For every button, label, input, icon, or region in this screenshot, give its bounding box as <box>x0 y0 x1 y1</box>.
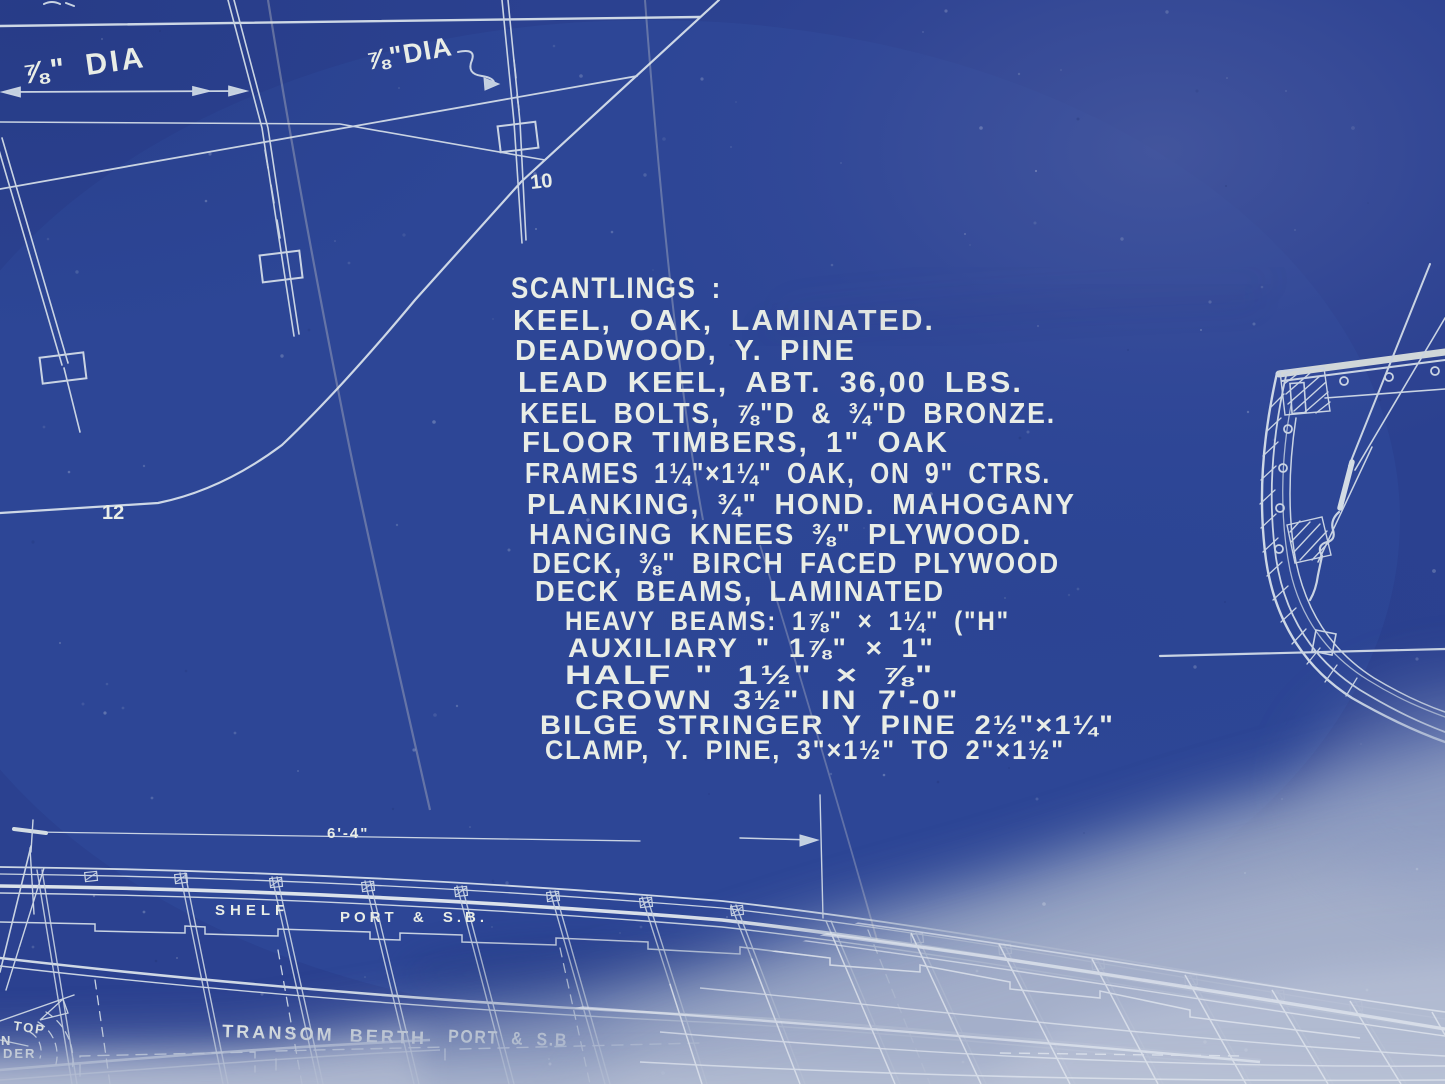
svg-text:AUXILIARY " 1⅞" × 1": AUXILIARY " 1⅞" × 1" <box>568 633 935 663</box>
svg-text:HEAVY BEAMS: 1⅞" × 1¼" ("H": HEAVY BEAMS: 1⅞" × 1¼" ("H" <box>565 606 1010 636</box>
svg-text:FLOOR TIMBERS, 1" OAK: FLOOR TIMBERS, 1" OAK <box>522 427 949 459</box>
svg-text:CLAMP, Y. PINE, 3"×1½" TO 2"×1: CLAMP, Y. PINE, 3"×1½" TO 2"×1½" <box>545 735 1065 765</box>
svg-text:PORT & S.B.: PORT & S.B. <box>340 909 488 926</box>
svg-text:FRAMES 1¼"×1¼" OAK, ON 9" CTRS: FRAMES 1¼"×1¼" OAK, ON 9" CTRS. <box>525 458 1051 490</box>
svg-text:PLANKING, ¾" HOND. MAHOGANY: PLANKING, ¾" HOND. MAHOGANY <box>527 489 1076 521</box>
svg-text:KEEL BOLTS, ⅞"D & ¾"D BRONZE.: KEEL BOLTS, ⅞"D & ¾"D BRONZE. <box>520 398 1056 430</box>
svg-text:12: 12 <box>102 502 124 524</box>
svg-text:DEADWOOD, Y. PINE: DEADWOOD, Y. PINE <box>515 335 856 367</box>
svg-text:SCANTLINGS :: SCANTLINGS : <box>511 272 722 305</box>
svg-text:DECK BEAMS, LAMINATED: DECK BEAMS, LAMINATED <box>535 576 945 608</box>
svg-text:SHELF: SHELF <box>215 902 289 919</box>
svg-text:HANGING KNEES ⅜" PLYWOOD.: HANGING KNEES ⅜" PLYWOOD. <box>529 519 1032 551</box>
svg-text:6'-4": 6'-4" <box>327 825 369 842</box>
svg-text:10: 10 <box>529 170 553 194</box>
svg-text:LEAD KEEL, ABT. 36,00 LBS.: LEAD KEEL, ABT. 36,00 LBS. <box>518 367 1023 399</box>
